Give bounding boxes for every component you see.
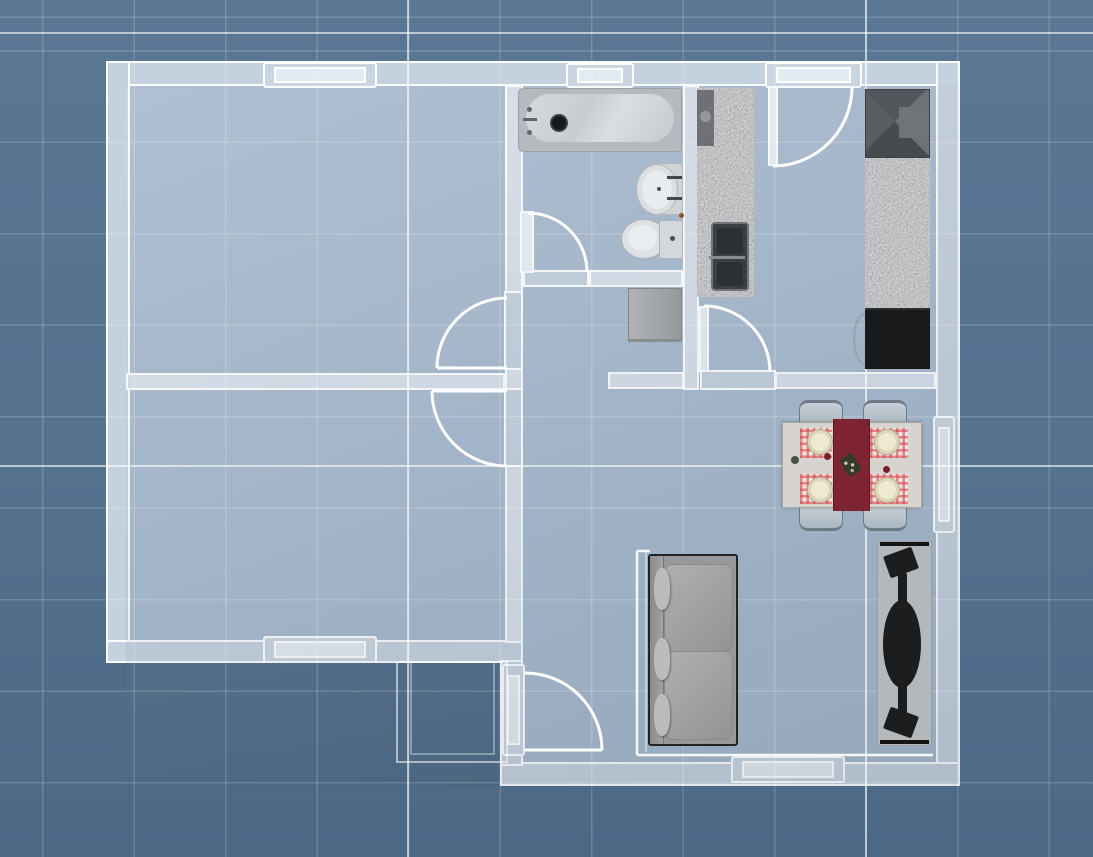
door-bedroom2-frame[interactable] [504,388,523,467]
sofa-cushion-2 [654,638,670,680]
terrace-outline-inner [411,662,494,754]
kitchen-sink[interactable] [711,222,749,291]
fridge-top-face [899,107,928,138]
plate-bottom-left [807,477,833,503]
door-kitchen-north-leaf[interactable] [768,86,778,166]
toilet-flush-button [670,236,675,241]
hammock-bar-top [880,542,929,546]
washbasin-faucet-1 [667,176,682,179]
window-pane [742,761,834,778]
bathtub-spout [523,118,537,121]
bathtub-drain [552,116,566,130]
sink-faucet [709,256,745,259]
wall-center-lower[interactable] [505,465,523,643]
door-bathroom-leaf[interactable] [520,211,534,273]
cooktop[interactable] [865,308,930,369]
window-pane [274,641,366,658]
door-kitchen-living-leaf[interactable] [699,306,709,372]
window-bedroom1-north[interactable] [263,62,377,88]
door-kitchen-living-frame[interactable] [700,370,776,390]
red-cup-2 [883,466,890,473]
floor-plan-canvas [0,0,1093,857]
door-bedroom1-frame[interactable] [504,291,523,370]
wall-bedrooms-divider[interactable] [126,373,505,390]
grid-major-horizontal-1 [0,32,1093,34]
washbasin-knob [679,213,684,218]
window-pane [577,68,623,83]
hammock-bar-bottom [880,740,929,744]
kitchen-counter-right[interactable] [865,158,930,308]
fridge[interactable] [865,89,930,158]
window-living-south[interactable] [731,756,845,783]
toilet-seat [628,225,657,251]
bathtub[interactable] [518,88,682,152]
wall-living-south[interactable] [500,762,960,786]
window-pane [938,427,950,522]
room-bedroom-1[interactable] [126,85,505,373]
wall-center-junction[interactable] [505,368,523,390]
washbasin-faucet-2 [667,197,682,200]
kitchen-wall-cabinet[interactable] [697,90,714,146]
sink-basin-bottom [717,262,743,286]
sofa[interactable] [648,554,738,746]
window-bathroom-north[interactable] [566,63,634,88]
window-bedroom2-south[interactable] [263,636,377,663]
washbasin[interactable] [636,161,683,216]
washing-machine[interactable] [628,288,682,342]
bathtub-handle-2 [527,130,532,135]
wall-hall-south-right[interactable] [775,372,936,389]
terrace-outline-outer [397,662,507,762]
door-pane [507,675,520,745]
bathtub-handle-1 [527,107,532,112]
green-cup [791,456,799,464]
wall-hall-south-left[interactable] [608,372,684,389]
door-pane [776,67,851,83]
plate-top-left [807,429,833,455]
plate-bottom-right [874,477,900,503]
hammock-lounger[interactable] [883,600,921,688]
room-bedroom-2[interactable] [126,390,505,643]
wall-bathroom-south[interactable] [589,270,683,287]
plate-top-right [874,429,900,455]
cabinet-knob [700,111,711,122]
red-cup-1 [824,453,831,460]
toilet[interactable] [621,219,683,259]
granite-texture [865,158,930,308]
door-entry-frame[interactable] [502,664,525,756]
window-pane [274,67,366,83]
sofa-seat-top [664,564,733,652]
bathtub-basin [526,94,674,142]
window-dining-east[interactable] [933,416,955,533]
sofa-cushion-3 [654,694,670,736]
door-kitchen-north-frame[interactable] [765,62,862,88]
sofa-cushion-1 [654,568,670,610]
sofa-seat-bottom [664,651,733,740]
sink-basin-top [717,228,743,254]
wall-exterior-left[interactable] [106,61,130,663]
washbasin-drain [657,187,661,191]
